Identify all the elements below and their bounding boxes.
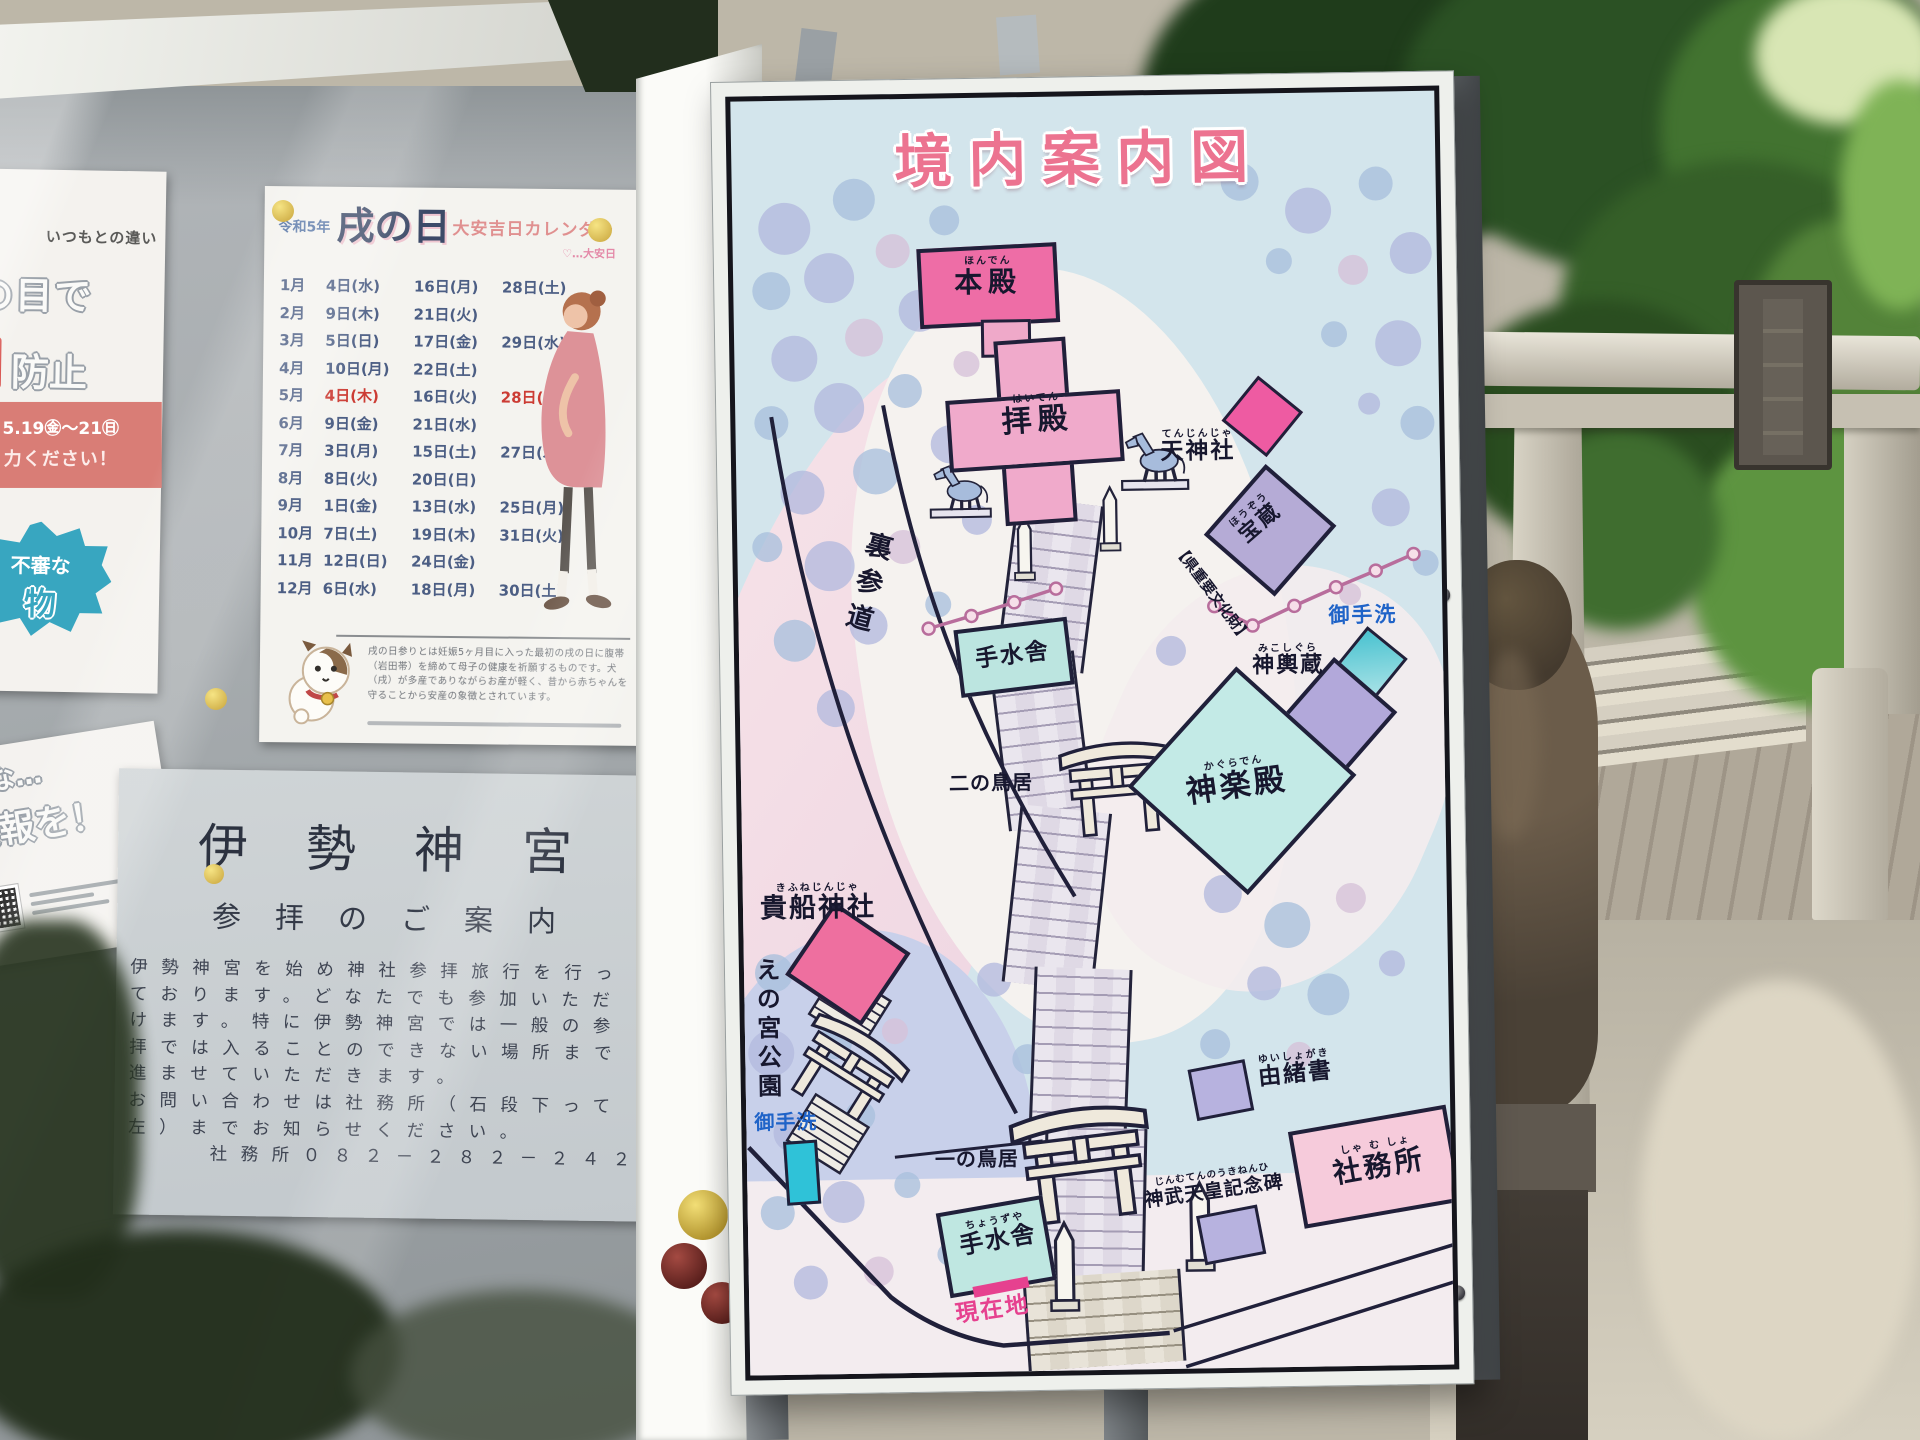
sunlit-pavement xyxy=(1640,980,1920,1440)
label-mitarashi-left: 御手洗 xyxy=(754,1110,817,1133)
label-text: 貴船神社 xyxy=(760,892,876,925)
alert-line1: いつもとの違い xyxy=(0,224,158,248)
ise-title: 伊勢神宮 xyxy=(118,806,653,885)
label-enomiya: えの宮公園 xyxy=(752,957,781,1102)
label-kifune: きふねじんじゃ 貴船神社 xyxy=(743,881,894,925)
mitarashi-left-building xyxy=(783,1140,821,1206)
alert-poster: いつもとの違い の目で 防止 5.19㊎〜21㊐ 力ください！ 不審な 物 xyxy=(0,168,167,693)
alert-blue-burst: 不審な 物 xyxy=(0,520,112,640)
alert-ask: 力ください！ xyxy=(0,445,162,471)
sign-bracket-tab xyxy=(996,15,1040,76)
map-panel: ほんでん 本殿 はいでん 拝殿 てんじんじゃ 天神社 ほうぞう 宝蔵 【県重要文… xyxy=(725,86,1459,1381)
map-title: 境内案内図 xyxy=(779,108,1380,201)
ise-body: 伊勢神宮を始め神社参拝旅行を行っております。どなたでも参加いただけます。特に伊勢… xyxy=(128,954,643,1147)
calendar-divider xyxy=(336,635,630,640)
alert-fushin: 不審な xyxy=(0,548,112,579)
alert-red-box xyxy=(0,336,2,389)
label-ni-no-torii: 二の鳥居 xyxy=(949,771,1033,795)
label-mitarashi-right: 御手洗 xyxy=(1328,603,1397,628)
label-ichi-no-torii: 一の鳥居 xyxy=(935,1147,1019,1171)
calendar-footnote-bar xyxy=(367,721,621,728)
plaque-inscription xyxy=(1763,299,1803,455)
magnet-pin xyxy=(272,200,294,222)
sign-bracket-tab xyxy=(795,28,838,88)
calendar-heart-note: ♡…大安日 xyxy=(562,245,616,262)
report-line2: 通報を！ xyxy=(0,786,109,860)
alert-line2: の目で xyxy=(0,264,94,320)
pregnant-woman-illustration xyxy=(512,285,643,616)
label-honden: ほんでん 本殿 xyxy=(928,255,1049,299)
label-mikoshigura: みこしぐら 神輿蔵 xyxy=(1233,642,1344,680)
label-text: 拝殿 xyxy=(1001,401,1075,441)
label-yuishogaki: ゆいしょがき 由緒書 xyxy=(1256,1047,1334,1091)
magnet-pin xyxy=(204,864,224,884)
sign-leg xyxy=(1104,1390,1148,1440)
dog-illustration xyxy=(277,638,364,725)
label-tenjinja: てんじんじゃ 天神社 xyxy=(1140,427,1257,466)
torii-beam-top xyxy=(1474,332,1920,391)
qr-caption xyxy=(28,874,124,920)
label-text: 本殿 xyxy=(954,265,1023,299)
torii-plaque xyxy=(1734,280,1832,470)
red-ball xyxy=(661,1243,707,1289)
yuishogaki-building xyxy=(1188,1059,1255,1121)
calendar-note: 戌の日参りとは妊娠5ヶ月目に入った最初の戌の日に腹帯（岩田帯）を締めて母子の健康… xyxy=(368,645,635,707)
stone-post xyxy=(1812,668,1888,920)
label-text: 神輿蔵 xyxy=(1252,653,1324,679)
alert-period: 5.19㊎〜21㊐ xyxy=(0,414,162,439)
calendar-poster: 令和5年 戌の日 大安吉日カレンダー ♡…大安日 1月4日(水)16日(月)28… xyxy=(259,186,653,746)
calendar-title: 戌の日 xyxy=(336,195,451,251)
ise-notice-poster: 伊勢神宮 参拝のご案内 伊勢神宮を始め神社参拝旅行を行っております。どなたでも参… xyxy=(113,768,653,1221)
shrine-map-sign: ほんでん 本殿 はいでん 拝殿 てんじんじゃ 天神社 ほうぞう 宝蔵 【県重要文… xyxy=(710,70,1475,1396)
magnet-pin xyxy=(588,218,612,242)
label-text: 天神社 xyxy=(1160,438,1235,465)
alert-red-band: 5.19㊎〜21㊐ 力ください！ xyxy=(0,402,162,488)
label-haiden: はいでん 拝殿 xyxy=(976,389,1099,442)
yellow-ball xyxy=(678,1190,728,1240)
torii-beam-lower xyxy=(1480,394,1920,428)
alert-line3: 防止 xyxy=(11,341,88,397)
magnet-pin xyxy=(205,688,227,710)
photo-scene: いつもとの違い の目で 防止 5.19㊎〜21㊐ 力ください！ 不審な 物 うな… xyxy=(0,0,1920,1440)
alert-mono: 物 xyxy=(0,577,111,625)
ise-subtitle: 参拝のご案内 xyxy=(117,892,652,941)
